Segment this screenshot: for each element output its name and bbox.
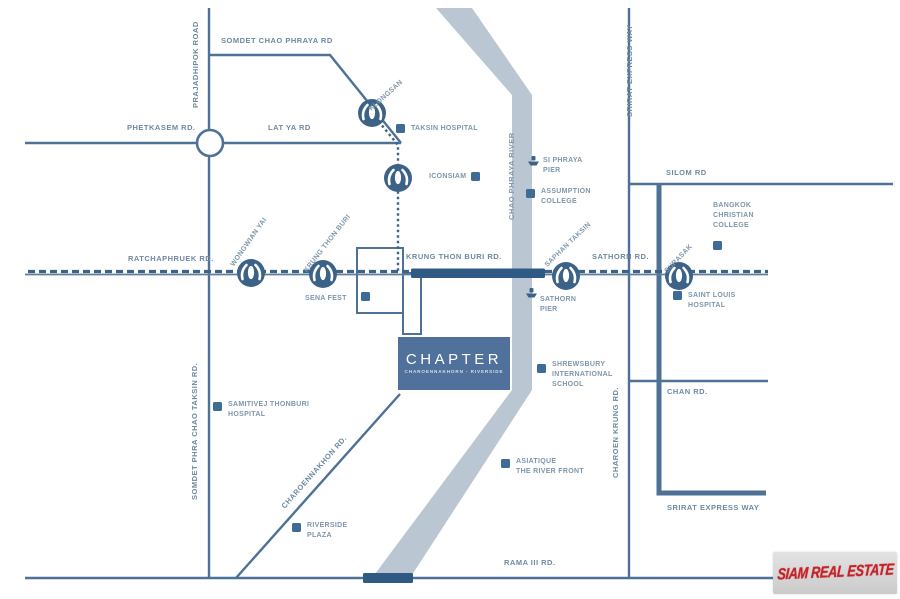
project-subtitle: CHAROENNAKHORN - RIVERSIDE xyxy=(405,369,504,375)
label-chan-rd: CHAN RD. xyxy=(667,387,708,397)
marker-iconsiam xyxy=(471,172,480,181)
label-somdet-chao-phraya-rd: SOMDET CHAO PHRAYA RD xyxy=(221,36,333,46)
label-srirat-expressway-top: SRIRAT EXPRESS WAY xyxy=(625,25,635,117)
label-sathorn-rd: SATHORN RD. xyxy=(592,252,649,262)
label-phetkasem-rd: PHETKASEM RD. xyxy=(127,123,196,133)
road-charoennakhon xyxy=(236,394,400,578)
marker-assumption-college xyxy=(526,189,535,198)
bts-station-saphan-taksin-icon xyxy=(551,261,581,291)
marker-saint-louis-hospital xyxy=(673,291,682,300)
label-chao-phraya-river: CHAO PHRAYA RIVER xyxy=(507,132,517,220)
landmark-sena-fest: SENA FEST xyxy=(305,294,347,304)
project-name: CHAPTER xyxy=(406,352,502,367)
si-phraya-pier-icon xyxy=(527,155,540,168)
label-ratchaphruek-rd: RATCHAPHRUEK RD. xyxy=(128,254,214,264)
landmark-assumption-college: ASSUMPTION COLLEGE xyxy=(541,187,591,207)
location-map: SOMDET CHAO PHRAYA RD PRAJADHIPOK ROAD P… xyxy=(0,0,900,599)
label-krung-thon-buri-rd: KRUNG THON BURI RD. xyxy=(406,252,502,262)
watermark-text: SIAM REAL ESTATE xyxy=(776,561,893,584)
city-block-1 xyxy=(357,248,403,313)
south-bridge xyxy=(363,573,413,583)
marker-samitivej-thonburi-hospital xyxy=(213,402,222,411)
marker-shrewsbury xyxy=(537,364,546,373)
map-canvas xyxy=(0,0,900,599)
landmark-shrewsbury: SHREWSBURY INTERNATIONAL SCHOOL xyxy=(552,360,613,390)
city-block-2 xyxy=(403,273,421,334)
label-rama3-rd: RAMA III RD. xyxy=(504,558,556,568)
landmark-taksin-hospital: TAKSIN HOSPITAL xyxy=(411,124,478,134)
marker-asiatique xyxy=(501,459,510,468)
wongwian-roundabout xyxy=(197,130,223,156)
marker-riverside-plaza xyxy=(292,523,301,532)
landmark-iconsiam: ICONSIAM xyxy=(429,172,466,182)
label-prajadhipok-road: PRAJADHIPOK ROAD xyxy=(191,21,201,108)
label-srirat-expressway-bottom: SRIRAT EXPRESS WAY xyxy=(667,503,759,513)
watermark-siam-real-estate: SIAM REAL ESTATE xyxy=(773,552,897,594)
marker-bangkok-christian-college xyxy=(713,241,722,250)
landmark-asiatique: ASIATIQUE THE RIVER FRONT xyxy=(516,457,584,477)
project-block: CHAPTER CHAROENNAKHORN - RIVERSIDE xyxy=(398,337,510,390)
label-somdet-phra-chao-taksin-rd: SOMDET PHRA CHAO TAKSIN RD. xyxy=(190,363,200,500)
sathorn-pier-icon xyxy=(525,287,538,300)
landmark-riverside-plaza: RIVERSIDE PLAZA xyxy=(307,521,347,541)
taksin-bridge xyxy=(411,269,545,279)
landmark-bangkok-christian-college: BANGKOK CHRISTIAN COLLEGE xyxy=(713,201,754,231)
label-silom-rd: SILOM RD xyxy=(666,168,707,178)
bts-station-charoen-nakhon-iconsiam-icon xyxy=(383,163,413,193)
landmark-si-phraya-pier: SI PHRAYA PIER xyxy=(543,156,583,176)
landmark-samitivej-thonburi-hospital: SAMITIVEJ THONBURI HOSPITAL xyxy=(228,400,309,420)
marker-taksin-hospital xyxy=(396,124,405,133)
label-lat-ya-rd: LAT YA RD xyxy=(268,123,311,133)
label-charoen-krung-rd: CHAROEN KRUNG RD. xyxy=(611,387,621,478)
landmark-sathorn-pier: SATHORN PIER xyxy=(540,295,576,315)
landmark-saint-louis-hospital: SAINT LOUIS HOSPITAL xyxy=(688,291,736,311)
marker-sena-fest xyxy=(361,292,370,301)
